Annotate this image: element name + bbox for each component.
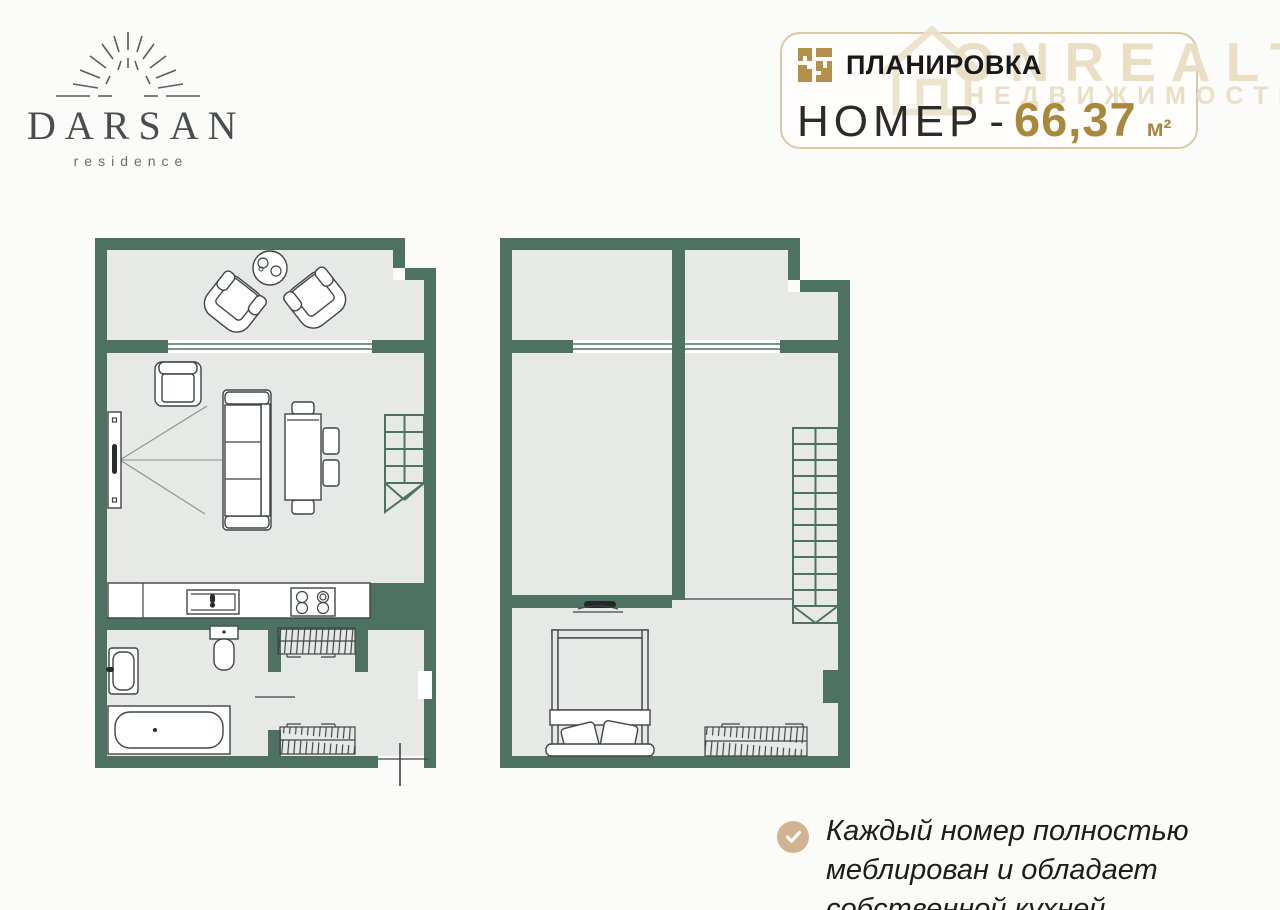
armchair <box>155 362 201 406</box>
feature-note: Каждый номер полностью меблирован и обла… <box>777 812 1247 910</box>
wardrobe-lower <box>280 724 355 754</box>
area-dash: - <box>989 97 1004 147</box>
balcony-coffee-table <box>253 251 287 285</box>
area-label: НОМЕР <box>797 97 983 147</box>
balcony-wall <box>107 340 424 353</box>
kitchen-sink <box>187 590 239 614</box>
door-jamb <box>823 670 838 703</box>
bathroom-sink <box>106 648 138 694</box>
brand-subtitle: residence <box>18 153 238 169</box>
floor-plan-level-1 <box>95 238 436 768</box>
header-title: ПЛАНИРОВКА <box>846 50 1042 81</box>
wardrobe-upper <box>278 628 355 657</box>
stove <box>291 588 335 616</box>
check-icon <box>777 821 809 853</box>
area-unit: м² <box>1147 115 1172 142</box>
note-text: Каждый номер полностью меблирован и обла… <box>826 812 1236 910</box>
kitchen-counter <box>108 583 370 618</box>
wall-niche <box>418 671 432 699</box>
floorplan-icon <box>797 47 833 83</box>
sunburst-icon <box>18 28 238 100</box>
plan-header: ПЛАНИРОВКА НОМЕР - 66,37 м² <box>797 47 1197 147</box>
bathtub <box>108 706 230 754</box>
sofa <box>223 390 271 530</box>
brand-name: DARSAN <box>18 102 238 149</box>
wardrobe <box>705 724 807 756</box>
floor-plan-level-2 <box>500 238 850 768</box>
area-value: 66,37 <box>1014 92 1137 147</box>
brand-logo: DARSAN residence <box>18 28 238 169</box>
toilet <box>210 626 238 670</box>
